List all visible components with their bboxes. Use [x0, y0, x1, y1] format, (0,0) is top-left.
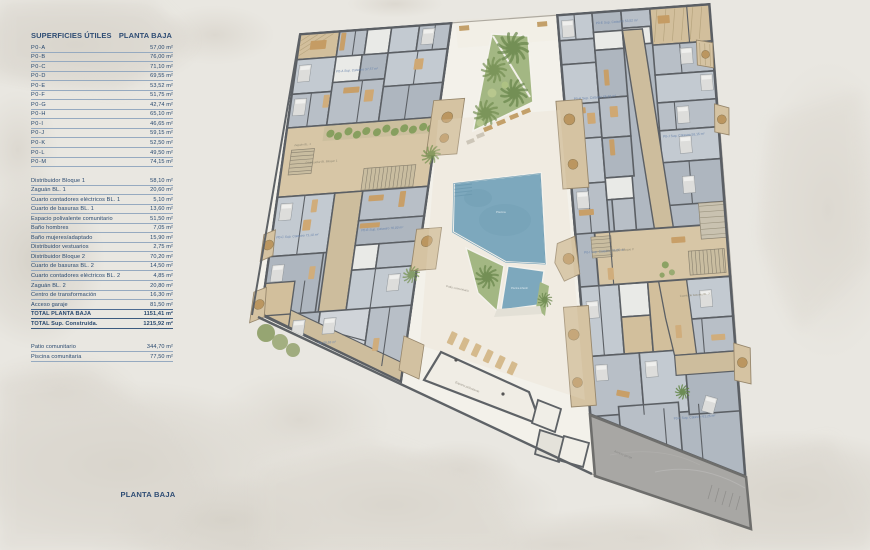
svg-text:Piscina infantil: Piscina infantil — [511, 286, 528, 290]
svg-text:Piscina: Piscina — [496, 210, 506, 214]
